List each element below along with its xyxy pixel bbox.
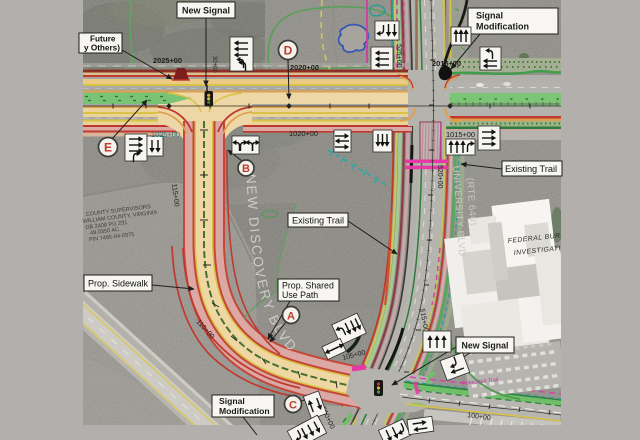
svg-text:E: E bbox=[104, 141, 112, 155]
svg-text:30+00: 30+00 bbox=[211, 56, 217, 74]
svg-text:Existing Trail: Existing Trail bbox=[505, 164, 557, 174]
svg-text:1025+00: 1025+00 bbox=[151, 130, 180, 139]
svg-text:520+00: 520+00 bbox=[436, 165, 443, 189]
svg-text:D: D bbox=[284, 44, 293, 58]
svg-text:Use Path: Use Path bbox=[282, 290, 318, 300]
svg-text:New Signal: New Signal bbox=[182, 6, 230, 16]
svg-text:Future: Future bbox=[90, 35, 116, 44]
svg-text:Signal: Signal bbox=[219, 396, 245, 406]
svg-text:New Signal: New Signal bbox=[462, 341, 509, 351]
svg-text:A: A bbox=[287, 311, 295, 323]
svg-text:2020+00: 2020+00 bbox=[290, 63, 319, 72]
svg-text:B: B bbox=[242, 163, 250, 175]
svg-text:2015+00: 2015+00 bbox=[432, 59, 461, 68]
svg-text:Signal: Signal bbox=[476, 11, 503, 21]
svg-text:Existing Trail: Existing Trail bbox=[292, 216, 344, 226]
svg-text:Modification: Modification bbox=[219, 406, 270, 416]
svg-text:Prop. Sidewalk: Prop. Sidewalk bbox=[88, 279, 149, 289]
svg-text:1015+00: 1015+00 bbox=[446, 130, 475, 139]
svg-text:Modification: Modification bbox=[476, 22, 529, 32]
svg-text:1020+00: 1020+00 bbox=[289, 129, 318, 138]
svg-text:C: C bbox=[289, 400, 297, 412]
svg-text:525+00: 525+00 bbox=[395, 44, 402, 68]
svg-text:2025+00: 2025+00 bbox=[153, 56, 182, 65]
svg-text:Prop. Shared: Prop. Shared bbox=[282, 281, 334, 291]
svg-text:y Others): y Others) bbox=[84, 44, 120, 53]
